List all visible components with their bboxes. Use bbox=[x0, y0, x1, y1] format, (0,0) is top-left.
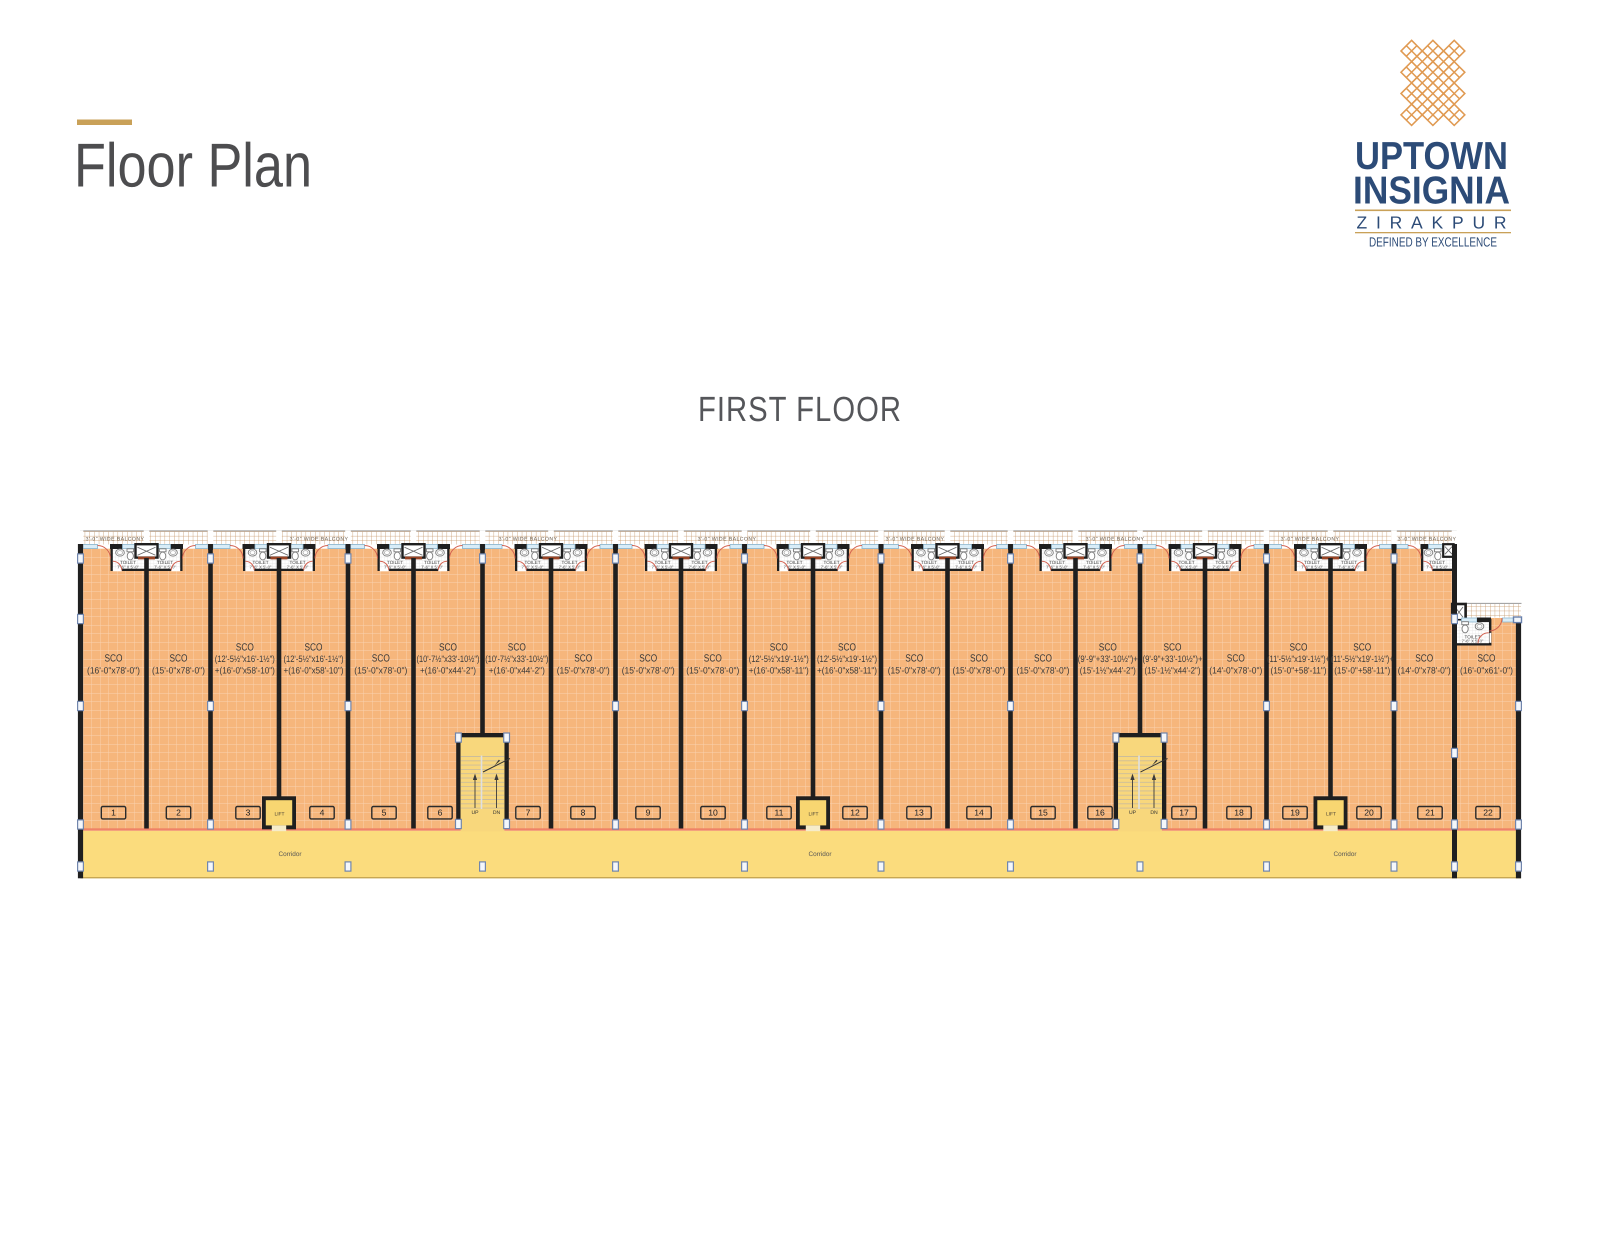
svg-text:SCO: SCO bbox=[704, 654, 722, 665]
svg-text:INSIGNIA: INSIGNIA bbox=[1353, 170, 1510, 213]
svg-text:SCO: SCO bbox=[1290, 643, 1308, 654]
svg-text:(9'-9"+33'-10½")+: (9'-9"+33'-10½")+ bbox=[1078, 654, 1138, 664]
svg-text:(15'-0"x78'-0"): (15'-0"x78'-0") bbox=[622, 666, 675, 676]
svg-text:FIRST FLOOR: FIRST FLOOR bbox=[698, 390, 902, 429]
svg-text:+(16'-0"x44'-2"): +(16'-0"x44'-2") bbox=[489, 666, 545, 676]
svg-text:17: 17 bbox=[1179, 808, 1189, 818]
svg-text:3'-0" WIDE BALCONY: 3'-0" WIDE BALCONY bbox=[499, 536, 558, 542]
svg-text:SCO: SCO bbox=[1099, 643, 1117, 654]
svg-text:+(16'-0"x58'-11"): +(16'-0"x58'-11") bbox=[817, 666, 877, 676]
svg-text:SCO: SCO bbox=[574, 654, 592, 665]
svg-text:(15'-0"x78'-0"): (15'-0"x78'-0") bbox=[953, 666, 1006, 676]
svg-text:10: 10 bbox=[708, 808, 718, 818]
svg-text:+(16'-0"x58'-11"): +(16'-0"x58'-11") bbox=[749, 666, 809, 676]
svg-text:SCO: SCO bbox=[1478, 654, 1496, 665]
svg-text:19: 19 bbox=[1290, 808, 1300, 818]
svg-text:21: 21 bbox=[1425, 808, 1435, 818]
svg-text:LIFT: LIFT bbox=[1326, 812, 1336, 818]
svg-text:SCO: SCO bbox=[1353, 643, 1371, 654]
svg-text:3'-0" WIDE BALCONY: 3'-0" WIDE BALCONY bbox=[290, 536, 349, 542]
svg-text:+(16'-0"x58'-10"): +(16'-0"x58'-10") bbox=[215, 666, 275, 676]
svg-text:20: 20 bbox=[1364, 808, 1374, 818]
svg-text:16: 16 bbox=[1095, 808, 1105, 818]
svg-text:(15'-0"x78'-0"): (15'-0"x78'-0") bbox=[354, 666, 407, 676]
svg-text:(15'-0"x78'-0"): (15'-0"x78'-0") bbox=[557, 666, 610, 676]
svg-text:3'-0" WIDE BALCONY: 3'-0" WIDE BALCONY bbox=[886, 536, 945, 542]
svg-text:(15'-0"x78'-0"): (15'-0"x78'-0") bbox=[1017, 666, 1070, 676]
svg-text:8: 8 bbox=[581, 808, 586, 818]
svg-text:DN: DN bbox=[1150, 810, 1158, 816]
svg-text:3'-0" WIDE BALCONY: 3'-0" WIDE BALCONY bbox=[1086, 536, 1145, 542]
svg-text:+(16'-0"x58'-10"): +(16'-0"x58'-10") bbox=[284, 666, 344, 676]
svg-text:7'-6" X 5'-0": 7'-6" X 5'-0" bbox=[1426, 564, 1448, 569]
svg-text:SCO: SCO bbox=[770, 643, 788, 654]
svg-text:(12'-5½"x19'-1½"): (12'-5½"x19'-1½") bbox=[749, 654, 809, 664]
svg-text:4: 4 bbox=[320, 808, 325, 818]
svg-text:3'-0" WIDE BALCONY: 3'-0" WIDE BALCONY bbox=[698, 536, 757, 542]
svg-text:(12'-5½"x16'-1½"): (12'-5½"x16'-1½") bbox=[284, 654, 344, 664]
svg-text:SCO: SCO bbox=[305, 643, 323, 654]
svg-text:SCO: SCO bbox=[905, 654, 923, 665]
svg-text:7'-6" X 5'-0": 7'-6" X 5'-0" bbox=[1462, 639, 1484, 644]
svg-text:(12'-5½"x19'-1½"): (12'-5½"x19'-1½") bbox=[817, 654, 877, 664]
svg-text:(10'-7½"x33'-10½"): (10'-7½"x33'-10½") bbox=[417, 654, 480, 664]
svg-text:13: 13 bbox=[914, 808, 924, 818]
svg-text:1: 1 bbox=[111, 808, 116, 818]
svg-text:(12'-5½"x16'-1½"): (12'-5½"x16'-1½") bbox=[215, 654, 275, 664]
svg-text:UP: UP bbox=[471, 810, 479, 816]
svg-text:SCO: SCO bbox=[1415, 654, 1433, 665]
svg-text:DN: DN bbox=[493, 810, 501, 816]
svg-text:7: 7 bbox=[526, 808, 531, 818]
svg-text:(16'-0"x61'-0"): (16'-0"x61'-0") bbox=[1460, 666, 1513, 676]
svg-text:(15'-0"+58'-11"): (15'-0"+58'-11") bbox=[1334, 666, 1390, 676]
svg-text:(16'-0"x78'-0"): (16'-0"x78'-0") bbox=[87, 666, 140, 676]
svg-text:+(16'-0"x44'-2"): +(16'-0"x44'-2") bbox=[420, 666, 476, 676]
svg-text:3'-0" WIDE BALCONY: 3'-0" WIDE BALCONY bbox=[1398, 536, 1457, 542]
svg-text:6: 6 bbox=[438, 808, 443, 818]
svg-text:(11'-5½"x19'-1½")+: (11'-5½"x19'-1½")+ bbox=[1267, 654, 1330, 664]
svg-text:(14'-0"x78'-0"): (14'-0"x78'-0") bbox=[1398, 666, 1451, 676]
svg-text:SCO: SCO bbox=[508, 643, 526, 654]
svg-text:LIFT: LIFT bbox=[808, 812, 818, 818]
svg-text:DEFINED BY EXCELLENCE: DEFINED BY EXCELLENCE bbox=[1369, 235, 1497, 250]
svg-text:3'-0" WIDE BALCONY: 3'-0" WIDE BALCONY bbox=[86, 536, 145, 542]
svg-text:SCO: SCO bbox=[372, 654, 390, 665]
svg-text:(15'-1½"x44'-2"): (15'-1½"x44'-2") bbox=[1080, 666, 1136, 676]
svg-text:3: 3 bbox=[246, 808, 251, 818]
svg-text:SCO: SCO bbox=[639, 654, 657, 665]
svg-text:(15'-0"x78'-0"): (15'-0"x78'-0") bbox=[152, 666, 205, 676]
svg-text:ZIRAKPUR: ZIRAKPUR bbox=[1357, 213, 1507, 233]
svg-text:SCO: SCO bbox=[236, 643, 254, 654]
svg-text:Corridor: Corridor bbox=[278, 851, 302, 858]
svg-text:SCO: SCO bbox=[105, 654, 123, 665]
svg-text:SCO: SCO bbox=[1227, 654, 1245, 665]
svg-text:9: 9 bbox=[646, 808, 651, 818]
svg-text:SCO: SCO bbox=[439, 643, 457, 654]
svg-text:Floor Plan: Floor Plan bbox=[74, 132, 312, 201]
svg-text:12: 12 bbox=[850, 808, 860, 818]
svg-text:SCO: SCO bbox=[1164, 643, 1182, 654]
svg-text:2: 2 bbox=[176, 808, 181, 818]
svg-text:(14'-0"x78'-0"): (14'-0"x78'-0") bbox=[1209, 666, 1262, 676]
svg-text:SCO: SCO bbox=[970, 654, 988, 665]
svg-text:UP: UP bbox=[1129, 810, 1137, 816]
svg-text:SCO: SCO bbox=[838, 643, 856, 654]
svg-text:22: 22 bbox=[1483, 808, 1493, 818]
svg-text:Corridor: Corridor bbox=[808, 851, 832, 858]
svg-text:(10'-7½"x33'-10½"): (10'-7½"x33'-10½") bbox=[485, 654, 548, 664]
svg-text:SCO: SCO bbox=[170, 654, 188, 665]
svg-text:LIFT: LIFT bbox=[274, 812, 284, 818]
svg-text:Corridor: Corridor bbox=[1333, 851, 1357, 858]
svg-text:5: 5 bbox=[382, 808, 387, 818]
svg-text:18: 18 bbox=[1234, 808, 1244, 818]
svg-text:15: 15 bbox=[1038, 808, 1048, 818]
svg-text:(15'-1½"x44'-2"): (15'-1½"x44'-2") bbox=[1145, 666, 1201, 676]
svg-text:11: 11 bbox=[775, 808, 784, 818]
svg-text:14: 14 bbox=[974, 808, 984, 818]
svg-text:(15'-0"x78'-0"): (15'-0"x78'-0") bbox=[888, 666, 941, 676]
svg-text:SCO: SCO bbox=[1034, 654, 1052, 665]
svg-text:(11'-5½"x19'-1½")+: (11'-5½"x19'-1½")+ bbox=[1331, 654, 1394, 664]
svg-text:(15'-0"x78'-0"): (15'-0"x78'-0") bbox=[686, 666, 739, 676]
svg-text:(15'-0"+58'-11"): (15'-0"+58'-11") bbox=[1271, 666, 1327, 676]
svg-text:(9'-9"+33'-10½")+: (9'-9"+33'-10½")+ bbox=[1143, 654, 1203, 664]
svg-text:3'-0" WIDE BALCONY: 3'-0" WIDE BALCONY bbox=[1281, 536, 1340, 542]
